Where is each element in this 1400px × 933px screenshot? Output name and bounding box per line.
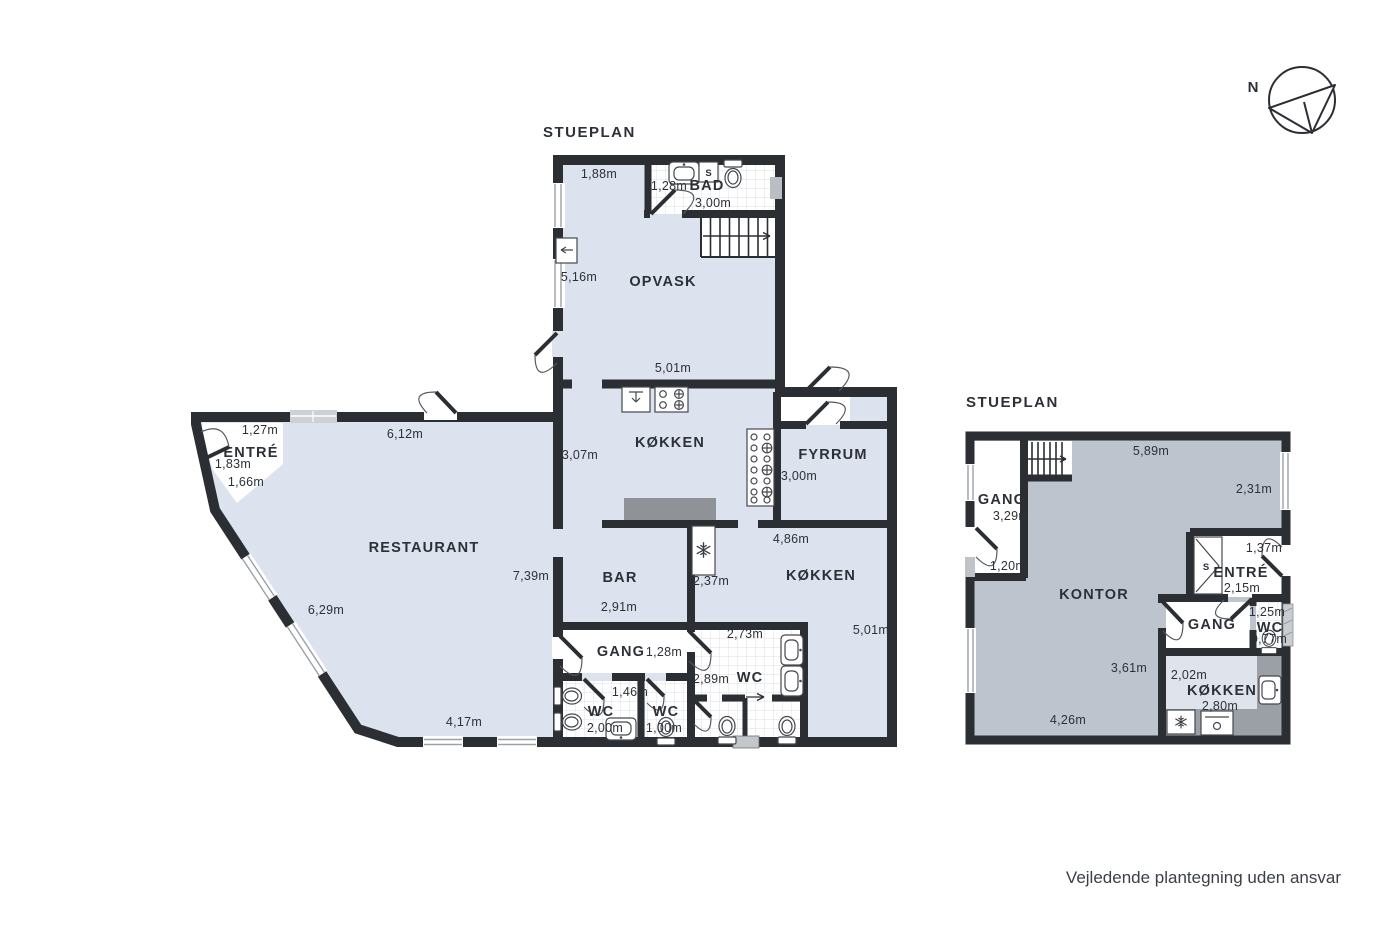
room-label-opvask: OPVASK: [629, 274, 696, 290]
floorplan-page: STUEPLAN 1,88m 1,28m BAD 3,00m S 5,16m O…: [0, 0, 1400, 933]
dim: 0,77m: [1251, 632, 1287, 646]
room-label-bar: BAR: [602, 570, 637, 586]
radiator-icon: [747, 429, 774, 506]
dim: 1,28m: [646, 645, 682, 659]
room-label-wc-left: WC: [588, 704, 615, 720]
floor-plan-main: STUEPLAN 1,88m 1,28m BAD 3,00m S 5,16m O…: [196, 124, 892, 748]
compass-north-label: N: [1248, 79, 1259, 96]
wc-left-toilet-1-icon: [554, 687, 582, 705]
floor-plan-upper: STUEPLAN 5,89m 2,31m GANG 3,29m 1,20m KO…: [965, 394, 1293, 740]
room-label-fyrrum: FYRRUM: [798, 447, 867, 463]
wc-right-sink-2-icon: [781, 666, 803, 696]
dim: 4,17m: [446, 715, 482, 729]
room-label-bad: BAD: [689, 178, 724, 194]
room-label-wc-right: WC: [737, 670, 764, 686]
dim: 1,00m: [646, 721, 682, 735]
dim: 5,01m: [655, 361, 691, 375]
dim: 1,20m: [990, 559, 1026, 573]
threshold-bottom: [733, 736, 759, 748]
room-label-gang-lower: GANG: [1188, 617, 1236, 633]
wc-right-toilet-1-icon: [718, 717, 736, 745]
dim: 1,66m: [228, 475, 264, 489]
dim: 5,89m: [1133, 444, 1169, 458]
dim: 3,07m: [562, 448, 598, 462]
floorplan-canvas: STUEPLAN 1,88m 1,28m BAD 3,00m S 5,16m O…: [0, 0, 1400, 933]
fridge-upper-icon: [1167, 710, 1195, 734]
dim: 1,83m: [215, 457, 251, 471]
dim: 1,28m: [651, 179, 687, 193]
wc-right-toilet-2-icon: [778, 717, 796, 745]
room-label-kokken-upper: KØKKEN: [1187, 683, 1257, 699]
room-label-wc-mid: WC: [653, 704, 680, 720]
footer-disclaimer: Vejledende plantegning uden ansvar: [1066, 868, 1341, 887]
dim: 3,61m: [1111, 661, 1147, 675]
wc-left-toilet-2-icon: [554, 713, 582, 731]
room-label-restaurant: RESTAURANT: [369, 540, 480, 556]
plan-upper-title: STUEPLAN: [966, 394, 1059, 411]
window-upper-right: [1280, 452, 1291, 510]
window-upper-left-2: [965, 628, 976, 693]
bad-toilet-icon: [724, 160, 742, 188]
window-bottom-1: [423, 736, 463, 748]
window-opvask-1: [551, 183, 565, 228]
dim: 2,37m: [693, 574, 729, 588]
opening-gang-upper-door: [965, 527, 976, 557]
window-bottom-2: [497, 736, 537, 748]
wc-right-sink-1-icon: [781, 635, 803, 665]
room-label-kontor: KONTOR: [1059, 587, 1129, 603]
window-upper-left-1: [965, 464, 976, 501]
dim: 2,15m: [1224, 581, 1260, 595]
compass: N: [1248, 67, 1335, 133]
dim: 1,25m: [1249, 605, 1285, 619]
room-label-gang: GANG: [597, 644, 645, 660]
north-arrow-icon: [1269, 85, 1335, 133]
dim: 3,29m: [993, 509, 1029, 523]
dim: 6,12m: [387, 427, 423, 441]
dim: 5,01m: [853, 623, 889, 637]
closet-label: S: [705, 168, 711, 179]
window-restaurant-top: [290, 410, 337, 423]
sill-gang-upper: [965, 556, 975, 577]
dim: 2,02m: [1171, 668, 1207, 682]
dim: 2,31m: [1236, 482, 1272, 496]
fridge-icon: [692, 526, 715, 575]
opening-bar: [552, 529, 564, 557]
room-label-gang-upper: GANG: [978, 492, 1026, 508]
dim: 2,73m: [727, 627, 763, 641]
plan-main-title: STUEPLAN: [543, 124, 636, 141]
closet-label-upper: S: [1203, 562, 1209, 573]
dim: 4,26m: [1050, 713, 1086, 727]
dim: 1,37m: [1246, 541, 1282, 555]
dim: 3,00m: [695, 196, 731, 210]
kitchen-sink-icon: [622, 387, 650, 412]
dim: 2,00m: [587, 721, 623, 735]
room-label-kokken2: KØKKEN: [786, 568, 856, 584]
dim: 3,00m: [781, 469, 817, 483]
opvask-sink-icon: [556, 238, 577, 263]
sink-upper-icon: [1259, 676, 1281, 704]
sill-bad-right: [770, 177, 782, 199]
stove-upper-icon: [1201, 711, 1233, 735]
stove-icon: [655, 387, 688, 412]
dim: 6,29m: [308, 603, 344, 617]
dim: 1,88m: [581, 167, 617, 181]
dim: 4,86m: [773, 532, 809, 546]
dim: 2,91m: [601, 600, 637, 614]
bar-counter: [624, 498, 716, 523]
dim: 5,16m: [561, 270, 597, 284]
dim: 1,46m: [612, 685, 648, 699]
dim: 1,27m: [242, 423, 278, 437]
dim: 2,89m: [693, 672, 729, 686]
room-label-kokken: KØKKEN: [635, 435, 705, 451]
dim: 7,39m: [513, 569, 549, 583]
dim: 2,80m: [1202, 699, 1238, 713]
room-label-entre-upper: ENTRÉ: [1213, 564, 1268, 581]
